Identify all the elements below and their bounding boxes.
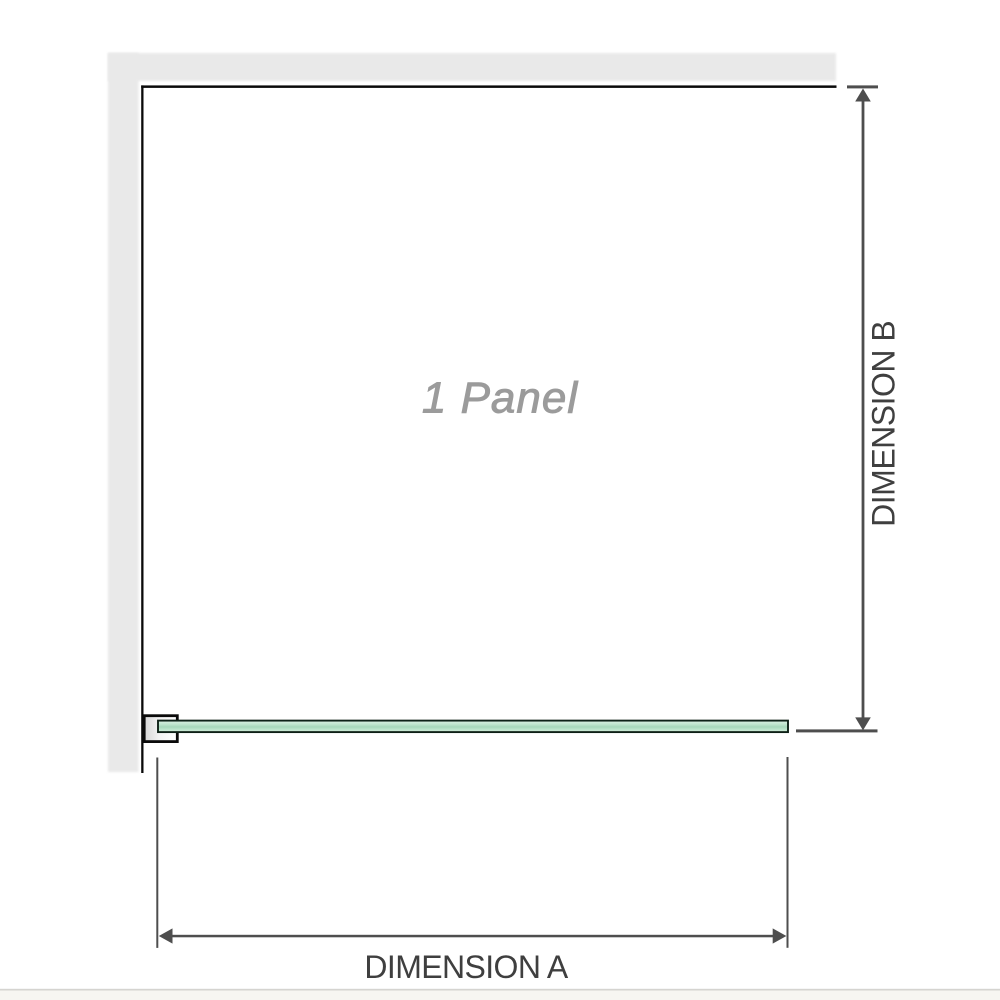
svg-text:1 Panel: 1 Panel xyxy=(422,374,578,423)
svg-text:DIMENSION A: DIMENSION A xyxy=(364,949,568,985)
svg-text:DIMENSION B: DIMENSION B xyxy=(866,321,902,527)
